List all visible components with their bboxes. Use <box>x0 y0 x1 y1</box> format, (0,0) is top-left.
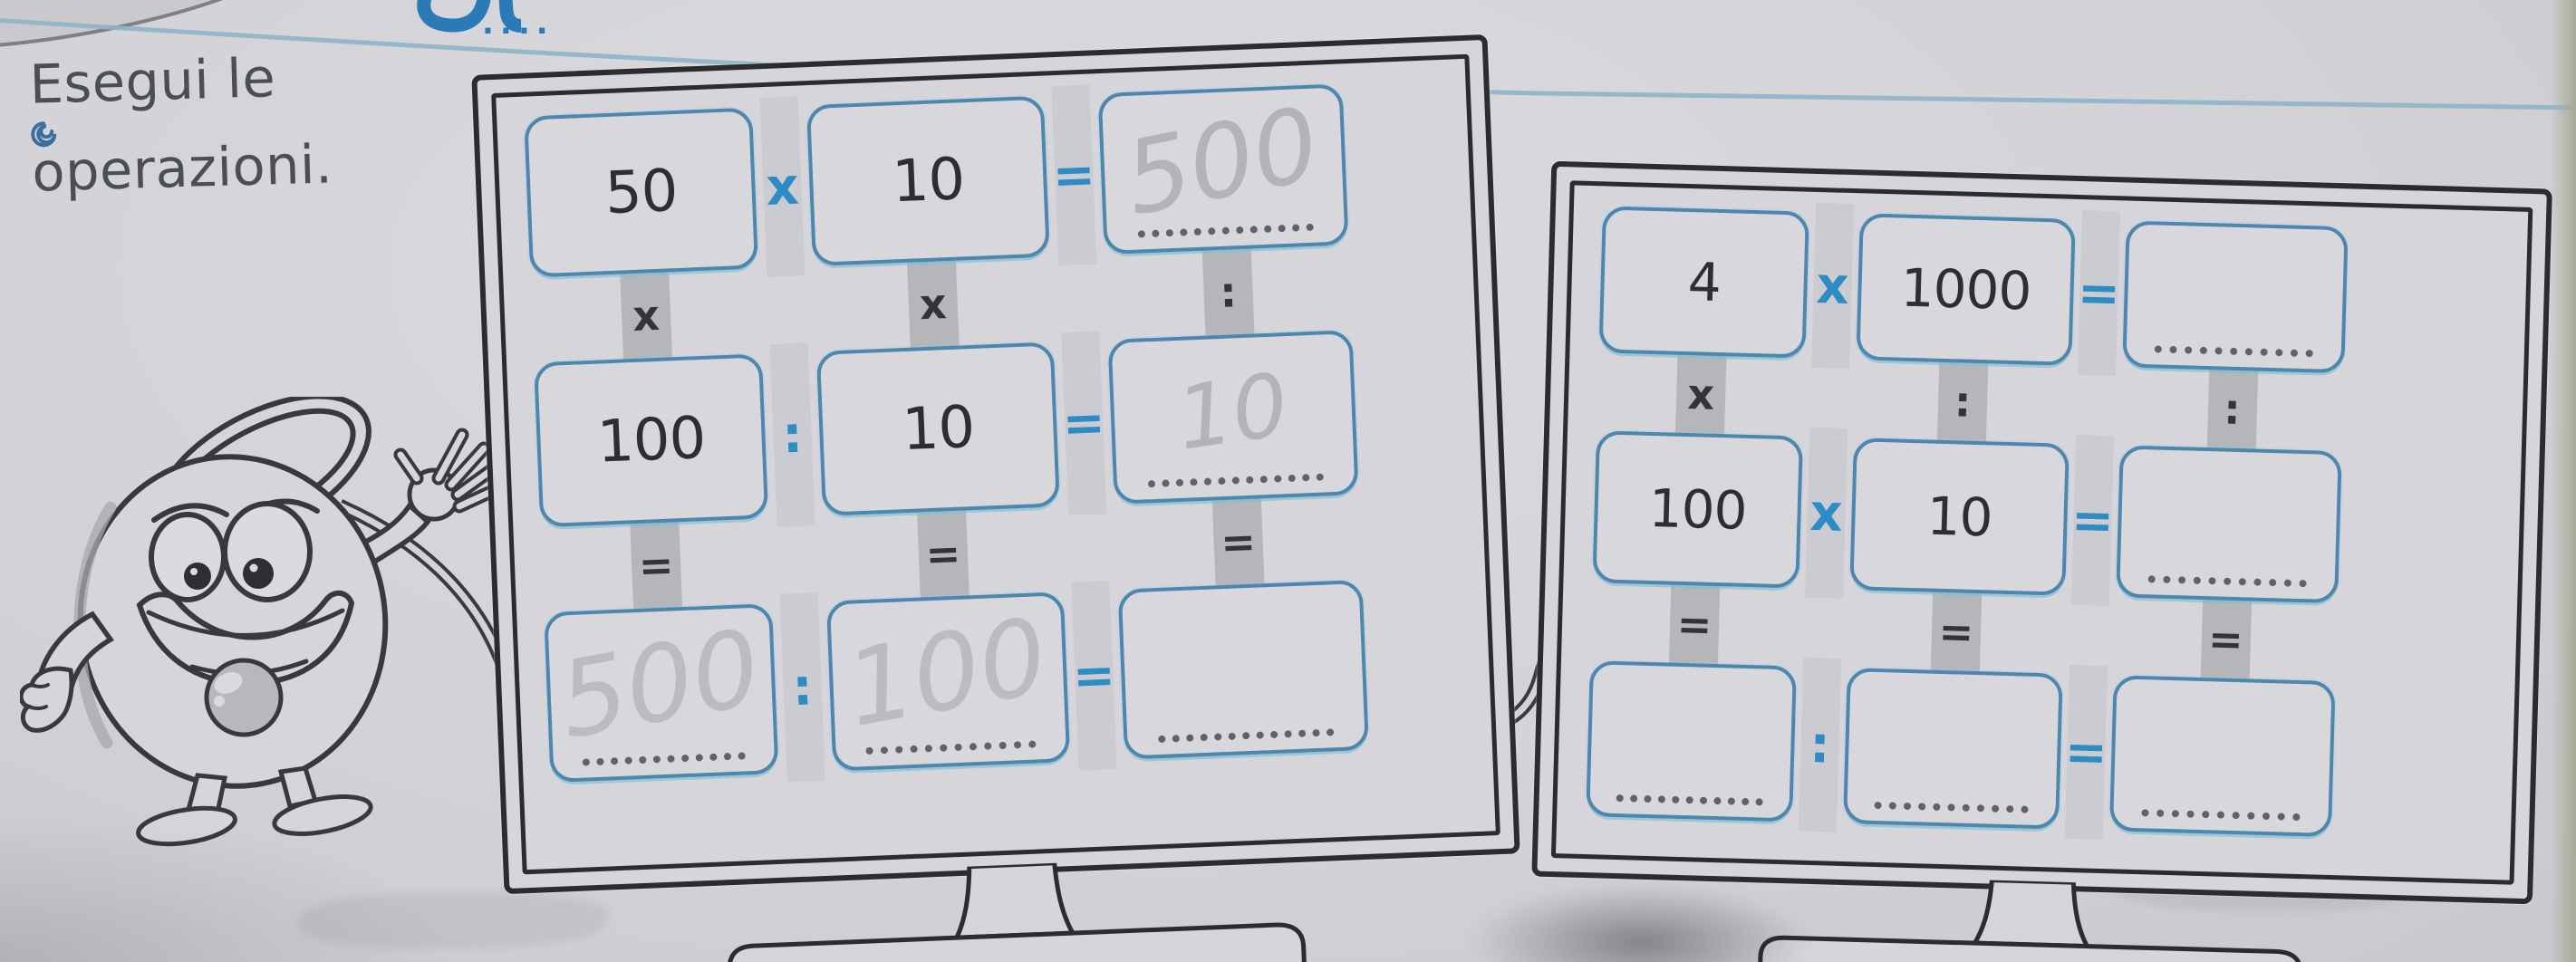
answer-box[interactable] <box>1586 660 1797 822</box>
answer-box[interactable] <box>2116 445 2342 603</box>
divide-operator: : <box>772 601 833 774</box>
link-operator: x <box>1675 344 1727 445</box>
dotted-line <box>1158 728 1334 743</box>
answer-box[interactable]: 100 <box>826 592 1070 771</box>
left-monitor-group: 50 x 10 = 500 x x : 100 : 10 = <box>471 34 1523 962</box>
left-operations-grid: 50 x 10 = 500 x x : 100 : 10 = <box>524 80 1468 849</box>
clipped-heading-dots: .... <box>482 5 555 42</box>
waving-hand-icon <box>400 435 497 519</box>
operand-box: 1000 <box>1856 213 2075 366</box>
operand-box: 10 <box>806 96 1050 266</box>
times-operator: x <box>752 105 813 268</box>
dotted-line <box>1148 474 1324 488</box>
operand-box: 100 <box>1592 430 1803 588</box>
equals-operator: = <box>2059 674 2114 831</box>
page-edge <box>2551 0 2576 962</box>
link-operator: : <box>2206 359 2258 459</box>
corner-shadow <box>0 808 471 962</box>
answer-box[interactable] <box>1118 580 1369 760</box>
link-operator: : <box>1937 351 1989 452</box>
right-monitor-group: 4 x 1000 = x : : 100 x 10 = <box>1529 161 2552 962</box>
instruction-line-2: operazioni. <box>31 120 333 216</box>
scroll-ball-icon <box>207 660 281 735</box>
link-operator: x <box>620 261 673 370</box>
link-operator: : <box>1201 238 1255 347</box>
dotted-line <box>582 752 746 765</box>
spiral-bullet-icon <box>24 116 63 155</box>
link-operator: x <box>906 250 960 359</box>
pencil-answer: 500 <box>536 584 783 784</box>
exercise-instruction: Esegui le operazioni. <box>28 32 333 216</box>
answer-box[interactable]: 500 <box>1098 83 1349 255</box>
mouse-body <box>59 437 406 805</box>
worksheet-page: Esegui le operazioni. .... <box>0 0 2576 962</box>
operand-value: 10 <box>1926 485 1993 548</box>
left-monitor: 50 x 10 = 500 x x : 100 : 10 = <box>471 34 1520 894</box>
link-operator: = <box>1211 487 1265 596</box>
monitor-stand <box>1730 873 2331 962</box>
operand-value: 10 <box>891 146 965 216</box>
answer-box[interactable]: 500 <box>544 603 778 783</box>
equals-operator: = <box>1044 93 1105 256</box>
dotted-line <box>2147 575 2307 587</box>
pencil-answer: 100 <box>819 572 1075 774</box>
link-operator: = <box>1931 582 1983 682</box>
link-operator: = <box>917 499 970 608</box>
operand-box: 100 <box>534 353 768 527</box>
answer-box[interactable] <box>2122 220 2348 373</box>
operand-value: 100 <box>1648 477 1748 542</box>
right-monitor: 4 x 1000 = x : : 100 x 10 = <box>1531 161 2552 905</box>
equals-operator: = <box>1064 590 1124 762</box>
operand-value: 1000 <box>1900 257 2031 322</box>
operand-value: 4 <box>1687 251 1722 313</box>
equals-operator: = <box>2065 444 2120 597</box>
equals-operator: = <box>1054 340 1114 506</box>
dotted-line <box>865 741 1036 755</box>
answer-box[interactable]: 10 <box>1108 330 1359 505</box>
dotted-line <box>1874 802 2028 813</box>
operand-box: 4 <box>1598 206 1809 358</box>
equals-operator: = <box>2071 219 2127 368</box>
answer-box[interactable] <box>2109 675 2336 837</box>
operand-box: 50 <box>524 108 758 278</box>
instruction-line-1: Esegui le <box>28 32 331 128</box>
answer-box[interactable] <box>1843 668 2063 830</box>
link-operator: = <box>2200 589 2252 689</box>
times-operator: x <box>1799 437 1854 590</box>
link-operator: = <box>630 511 683 620</box>
operand-value: 100 <box>596 405 707 476</box>
dotted-line <box>1138 224 1314 238</box>
fist-icon <box>21 669 72 730</box>
divide-operator: : <box>1792 667 1848 823</box>
dotted-line <box>2155 345 2314 357</box>
operand-value: 10 <box>901 394 975 464</box>
times-operator: x <box>1805 212 1860 361</box>
dotted-line <box>2141 809 2301 821</box>
operand-box: 10 <box>1849 438 2069 596</box>
divide-operator: : <box>762 351 823 518</box>
operand-box: 10 <box>816 342 1060 515</box>
dotted-line <box>1616 794 1763 806</box>
operand-value: 50 <box>603 158 678 227</box>
link-operator: = <box>1669 574 1721 675</box>
right-operations-grid: 4 x 1000 = x : : 100 x 10 = <box>1586 206 2499 859</box>
